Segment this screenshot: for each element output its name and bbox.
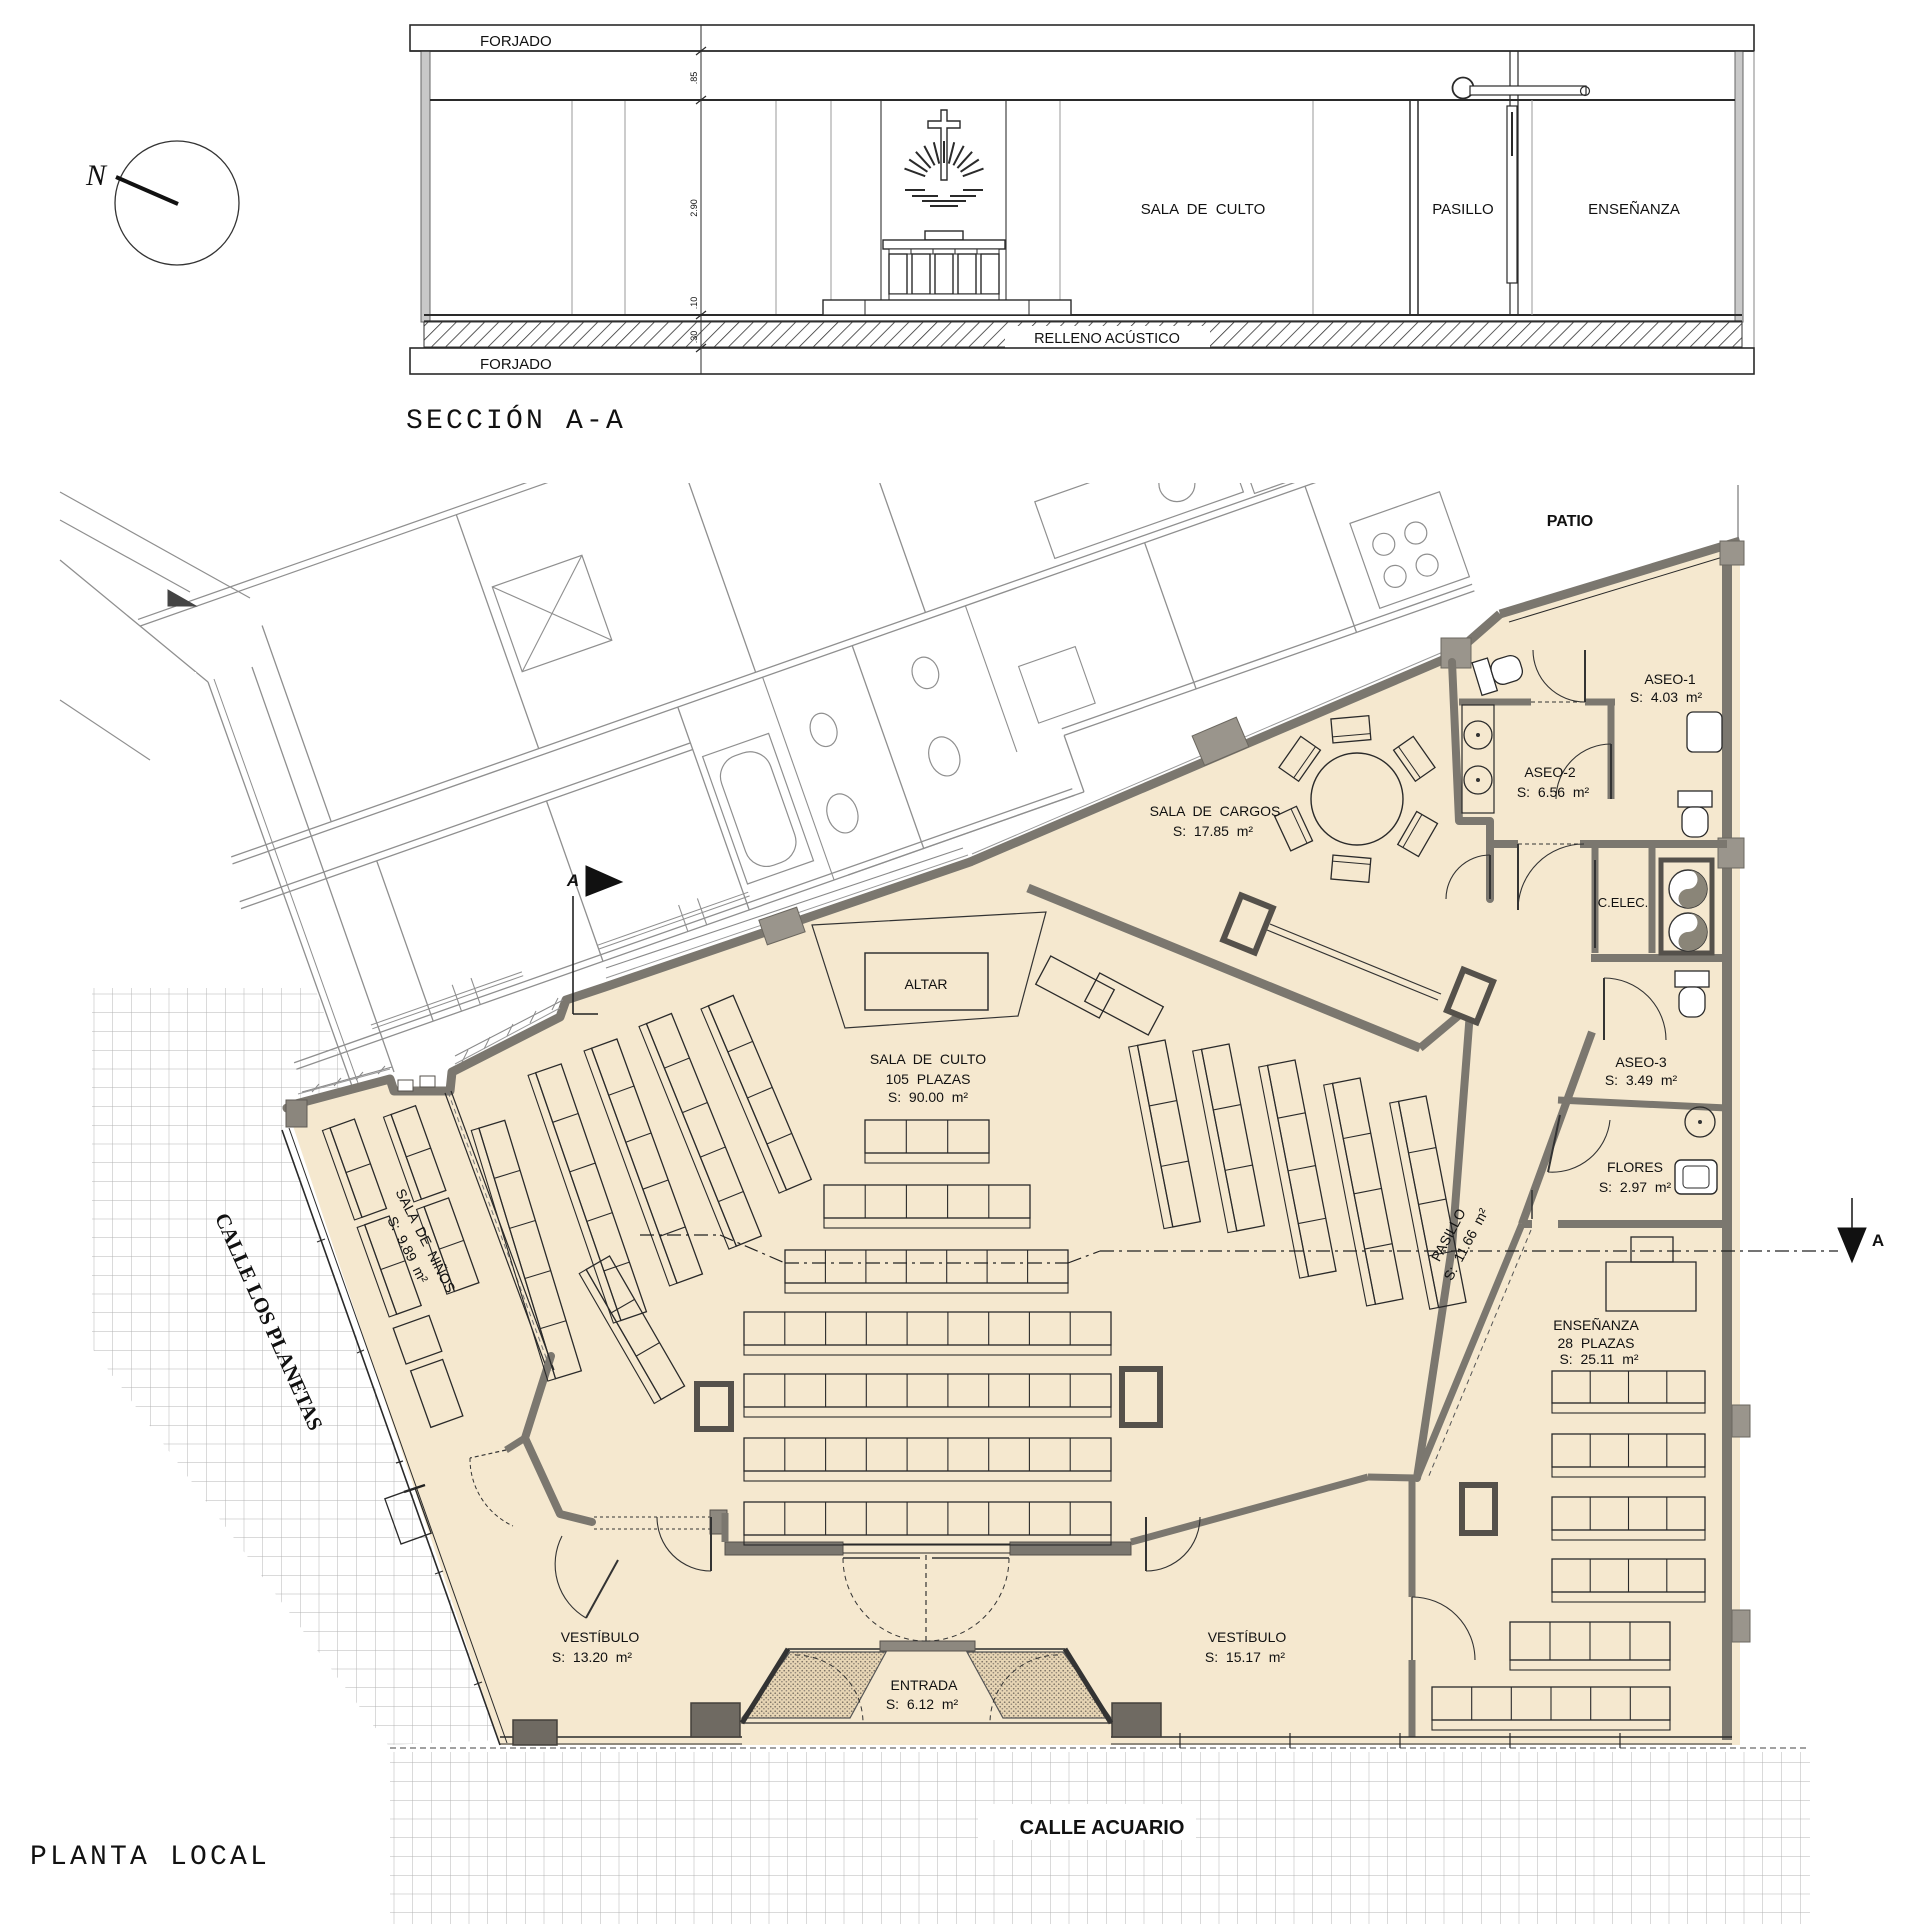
svg-text:FORJADO: FORJADO xyxy=(480,33,552,50)
svg-text:ALTAR: ALTAR xyxy=(904,976,947,992)
svg-text:S: 25.11 m²: S: 25.11 m² xyxy=(1559,1351,1638,1367)
svg-text:RELLENO ACÚSTICO: RELLENO ACÚSTICO xyxy=(1034,330,1180,347)
svg-text:.85: .85 xyxy=(689,72,699,85)
svg-text:S: 4.03 m²: S: 4.03 m² xyxy=(1630,689,1703,705)
svg-text:ENSEÑANZA: ENSEÑANZA xyxy=(1588,201,1680,218)
svg-text:105 PLAZAS: 105 PLAZAS xyxy=(886,1071,971,1087)
svg-text:S: 17.85 m²: S: 17.85 m² xyxy=(1173,823,1253,839)
svg-text:ENTRADA: ENTRADA xyxy=(891,1677,959,1693)
svg-text:.10: .10 xyxy=(689,297,699,310)
svg-text:PLANTA LOCAL: PLANTA LOCAL xyxy=(30,1842,270,1873)
svg-text:CALLE ACUARIO: CALLE ACUARIO xyxy=(1020,1817,1185,1839)
svg-text:S: 3.49 m²: S: 3.49 m² xyxy=(1605,1072,1678,1088)
svg-text:SALA DE CARGOS: SALA DE CARGOS xyxy=(1150,803,1281,819)
svg-text:SALA DE CULTO: SALA DE CULTO xyxy=(1141,201,1266,218)
svg-text:FLORES: FLORES xyxy=(1607,1159,1663,1175)
svg-text:A: A xyxy=(566,871,579,890)
svg-text:ENSEÑANZA: ENSEÑANZA xyxy=(1553,1317,1639,1333)
svg-text:VESTÍBULO: VESTÍBULO xyxy=(561,1629,640,1645)
svg-text:28 PLAZAS: 28 PLAZAS xyxy=(1557,1335,1634,1351)
svg-text:PASILLO: PASILLO xyxy=(1432,201,1493,218)
svg-text:S: 15.17 m²: S: 15.17 m² xyxy=(1205,1649,1285,1665)
svg-text:ASEO-3: ASEO-3 xyxy=(1615,1054,1667,1070)
svg-text:A: A xyxy=(1872,1231,1884,1250)
svg-text:VESTÍBULO: VESTÍBULO xyxy=(1208,1629,1287,1645)
svg-text:PATIO: PATIO xyxy=(1547,513,1594,530)
svg-text:C.ELEC.: C.ELEC. xyxy=(1598,895,1649,910)
svg-text:SALA DE CULTO: SALA DE CULTO xyxy=(870,1051,986,1067)
svg-text:ASEO-2: ASEO-2 xyxy=(1524,764,1576,780)
svg-text:N: N xyxy=(85,159,108,192)
svg-text:ASEO-1: ASEO-1 xyxy=(1644,671,1696,687)
svg-text:SECCIÓN A-A: SECCIÓN A-A xyxy=(406,404,626,437)
svg-text:2.90: 2.90 xyxy=(689,199,699,217)
svg-text:.30: .30 xyxy=(689,331,699,344)
svg-text:S: 90.00 m²: S: 90.00 m² xyxy=(888,1089,968,1105)
svg-text:S: 6.56 m²: S: 6.56 m² xyxy=(1517,784,1590,800)
svg-text:FORJADO: FORJADO xyxy=(480,356,552,373)
svg-text:S: 2.97 m²: S: 2.97 m² xyxy=(1599,1179,1672,1195)
svg-text:S: 13.20 m²: S: 13.20 m² xyxy=(552,1649,632,1665)
svg-text:S: 6.12 m²: S: 6.12 m² xyxy=(886,1696,959,1712)
